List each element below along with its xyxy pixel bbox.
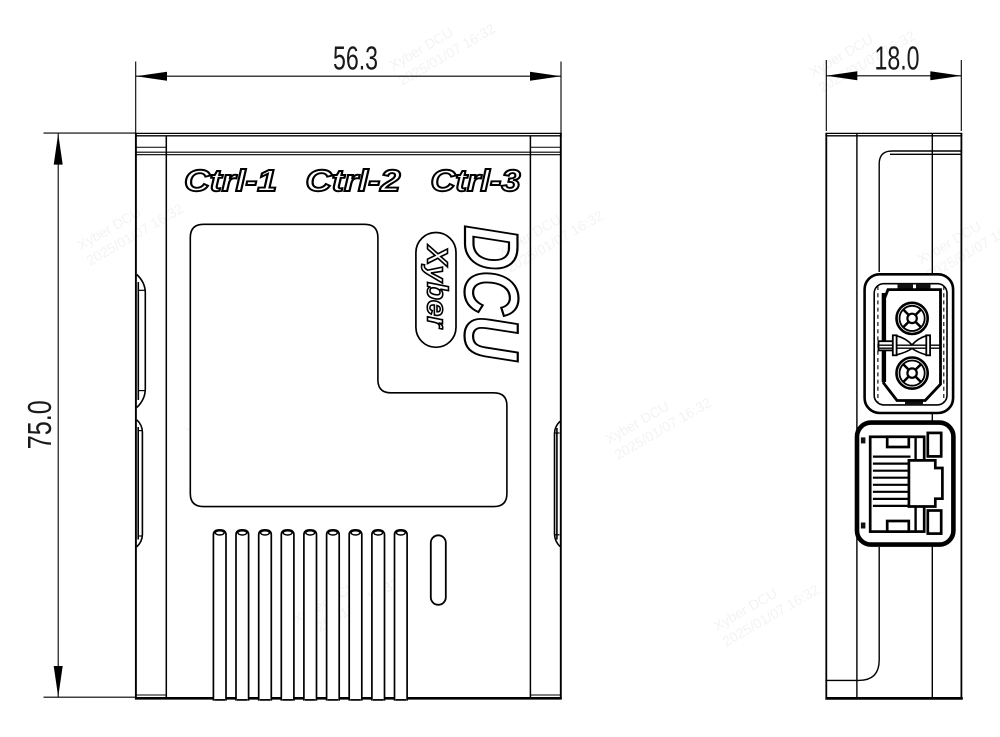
svg-text:18.0: 18.0	[875, 40, 920, 77]
svg-text:DCU: DCU	[448, 225, 533, 362]
svg-text:56.3: 56.3	[333, 40, 378, 77]
svg-text:Ctrl-2: Ctrl-2	[306, 164, 401, 198]
svg-text:Xyber: Xyber	[421, 244, 453, 330]
svg-text:Ctrl-1: Ctrl-1	[184, 164, 277, 198]
svg-text:Ctrl-3: Ctrl-3	[431, 164, 521, 198]
svg-text:75.0: 75.0	[21, 400, 58, 449]
